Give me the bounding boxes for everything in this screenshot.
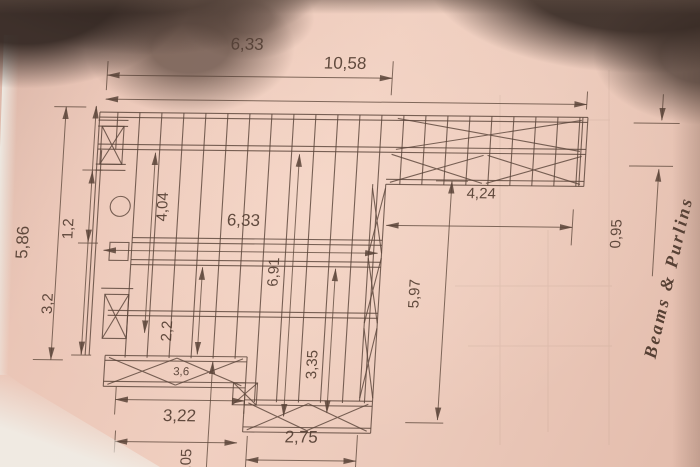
dim-label-bottom-left: 3,22 <box>162 406 196 425</box>
dim-label-bottom-cut: 1,05 <box>177 449 196 467</box>
dim-left-segments: 1,2 3,2 <box>36 106 106 356</box>
dim-label-inner-lower: 3,35 <box>303 350 322 379</box>
bottom-band-left <box>102 355 247 405</box>
dim-bottom-left-width: 3,22 <box>114 386 245 425</box>
dim-label-top-total: 10,58 <box>323 54 367 73</box>
dim-label-right-height: 5,97 <box>405 279 424 308</box>
dim-label-bottom-mid: 2,75 <box>284 427 318 446</box>
dim-label-arm-depth: 0,95 <box>607 219 626 248</box>
dim-label-left-total: 5,86 <box>12 226 33 259</box>
column-circle-symbol <box>110 196 131 216</box>
left-wall-strip <box>84 112 144 355</box>
photo-of-framing-plan: 6,33 10,58 5,86 <box>0 0 700 467</box>
top-beam-band <box>96 112 588 186</box>
dim-arm-width: 4,24 <box>385 184 575 245</box>
dim-label-inner-width: 6,33 <box>226 211 260 230</box>
dim-arm-depth: 0,95 <box>605 94 681 277</box>
dim-label-inner-left: 4,04 <box>153 192 172 221</box>
reverse-side-bleed-lines <box>455 70 612 445</box>
interior-beam-lines <box>108 237 383 318</box>
dim-label-arm-width: 4,24 <box>466 185 496 202</box>
dim-label-left-upper: 1,2 <box>59 218 77 239</box>
dim-top-total: 10,58 <box>105 51 589 109</box>
right-braced-edge <box>360 184 386 401</box>
dim-label-inner-small: 2,2 <box>158 320 176 341</box>
dim-line-unlabeled <box>114 430 237 453</box>
dim-label-top-main: 6,33 <box>230 35 264 54</box>
framing-structure <box>80 112 588 435</box>
dim-label-inner-mid: 6,91 <box>264 257 283 286</box>
floor-plan-drawing: 6,33 10,58 5,86 <box>0 0 700 467</box>
dim-label-band-small: 3,6 <box>173 366 190 378</box>
dim-label-left-lower: 3,2 <box>39 293 57 314</box>
dim-right-height: 5,97 <box>398 181 468 424</box>
dim-inner-lower-height: 3,35 <box>301 269 336 413</box>
